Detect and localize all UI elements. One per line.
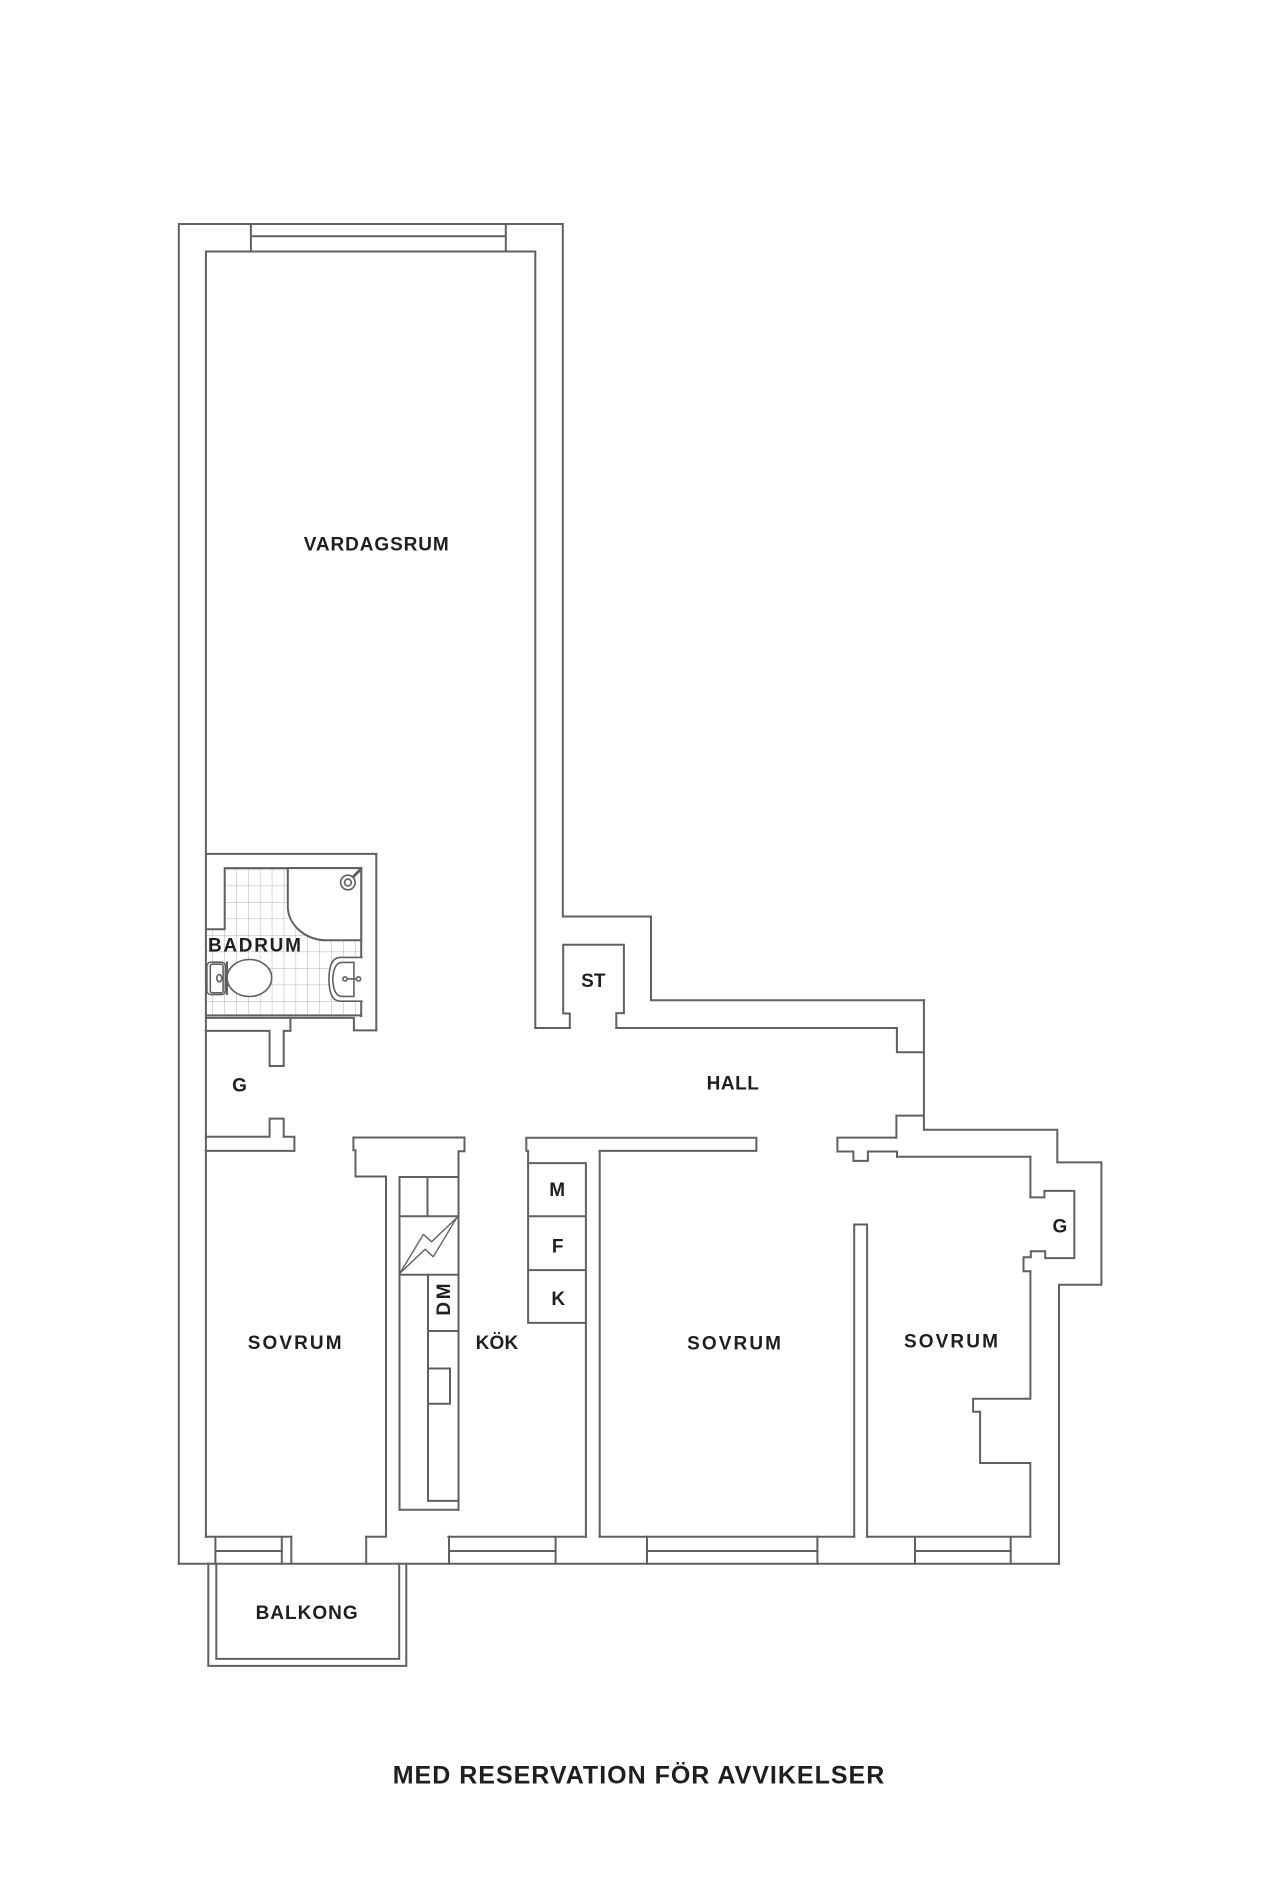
svg-text:ST: ST bbox=[581, 971, 606, 992]
svg-text:DM: DM bbox=[434, 1281, 455, 1316]
svg-text:K: K bbox=[551, 1289, 565, 1310]
svg-text:F: F bbox=[552, 1236, 564, 1257]
svg-text:M: M bbox=[549, 1180, 565, 1201]
svg-text:G: G bbox=[232, 1075, 247, 1096]
svg-text:G: G bbox=[1053, 1217, 1068, 1238]
svg-text:SOVRUM: SOVRUM bbox=[687, 1333, 783, 1354]
svg-text:VARDAGSRUM: VARDAGSRUM bbox=[304, 535, 450, 556]
svg-text:BALKONG: BALKONG bbox=[256, 1603, 359, 1624]
svg-text:SOVRUM: SOVRUM bbox=[248, 1333, 344, 1354]
svg-text:MED RESERVATION FÖR AVVIKELSER: MED RESERVATION FÖR AVVIKELSER bbox=[393, 1761, 886, 1790]
svg-text:BADRUM: BADRUM bbox=[208, 936, 303, 957]
svg-text:SOVRUM: SOVRUM bbox=[904, 1332, 1000, 1353]
svg-text:HALL: HALL bbox=[707, 1073, 760, 1094]
svg-text:KÖK: KÖK bbox=[476, 1333, 519, 1354]
